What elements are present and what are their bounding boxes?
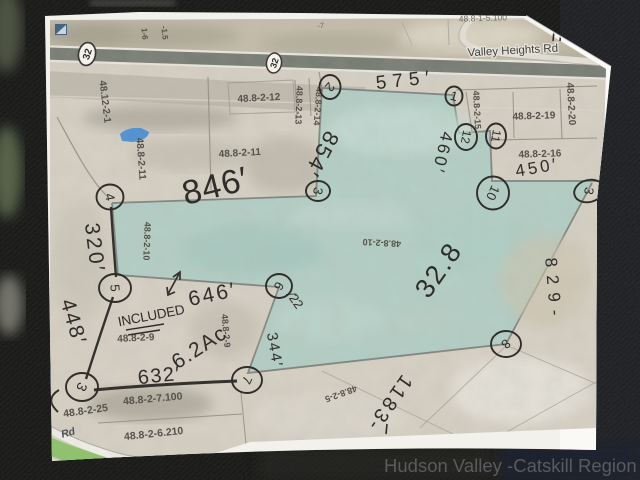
svg-text:48.8-2-19: 48.8-2-19 [512,110,556,123]
svg-text:12: 12 [458,129,474,145]
svg-text:5: 5 [107,284,123,293]
svg-text:48.8-2-15: 48.8-2-15 [471,90,483,129]
svg-text:48.8-2-10: 48.8-2-10 [362,237,401,249]
svg-text:48.8-2-20: 48.8-2-20 [564,82,577,126]
svg-text:48.8-2-12: 48.8-2-12 [237,92,281,105]
svg-text:-1.5: -1.5 [159,26,169,41]
svg-text:Hudson Valley -Catskill Region: Hudson Valley -Catskill Region Mt [384,455,640,476]
svg-text:48.8-2-10: 48.8-2-10 [141,222,152,261]
svg-text:48.8-2-11: 48.8-2-11 [218,147,261,160]
svg-text:48.8-2-13: 48.8-2-13 [293,86,304,125]
svg-text:1-6: 1-6 [140,28,150,41]
svg-text:-7: -7 [317,21,324,31]
